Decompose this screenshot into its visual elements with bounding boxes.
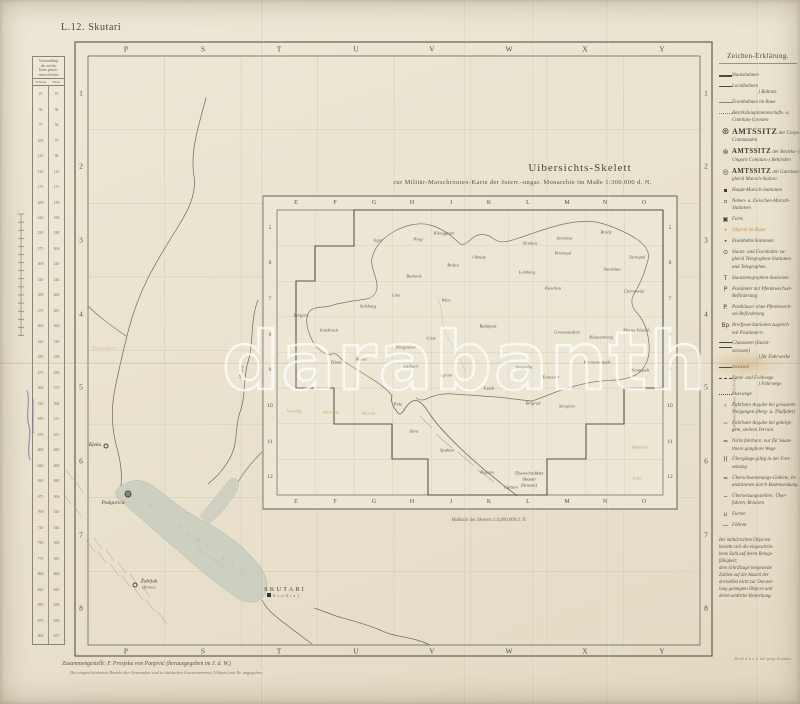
inset-city-label: Laibach (403, 364, 418, 369)
inset-row-number-left: 5 (269, 225, 272, 231)
inset-city-label: Agram (440, 373, 453, 378)
grid-col-letter-bottom: S (201, 647, 205, 656)
inset-foreign-city-label: Venedig (287, 409, 302, 414)
inset-city-label: Serajevo (559, 404, 575, 409)
inset-row-number-left: 6 (269, 260, 272, 266)
inset-row-number-left: 9 (269, 367, 272, 373)
inset-city-label: Wien (441, 298, 450, 303)
inset-current-sheet-label: Skutari (522, 477, 535, 482)
grid-row-number-left: 4 (79, 310, 83, 319)
inset-foreign-city-label: Sofia (632, 476, 641, 481)
inset-foreign-city-label: Ancona (361, 411, 375, 416)
inset-city-label: Königgrätz (434, 231, 455, 236)
grid-col-letter-top: Y (659, 45, 664, 54)
grid-col-letter-bottom: U (353, 647, 358, 656)
inset-city-label: Czernowitz (624, 289, 645, 294)
grid-col-letter-top: V (429, 45, 434, 54)
inset-row-number-right: 7 (669, 296, 672, 302)
grid-row-number-left: 1 (79, 89, 83, 98)
grid-row-number-right: 3 (704, 236, 708, 245)
grid-col-letter-bottom: V (429, 647, 434, 656)
inset-row-number-right: 6 (669, 260, 672, 266)
inset-city-label: Klausenburg (589, 335, 613, 340)
grid-row-number-left: 7 (79, 531, 83, 540)
inset-city-label: Stanislau (603, 267, 620, 272)
inset-row-number-left: 11 (267, 439, 272, 445)
place-marker-dot (104, 444, 109, 449)
grid-col-letter-bottom: X (582, 647, 587, 656)
grid-col-letter-bottom: T (277, 647, 282, 656)
grid-col-letter-top: S (201, 45, 205, 54)
inset-city-label: Lemberg (519, 270, 535, 275)
inset-col-letter-bottom: K (487, 499, 491, 505)
inset-current-sheet-label: (Scutari) (521, 483, 537, 488)
inset-row-number-right: 5 (669, 225, 672, 231)
inset-col-letter-top: N (603, 200, 607, 206)
inset-city-label: Maros-Vásárh. (623, 328, 651, 333)
inset-city-label: Eger (374, 238, 383, 243)
grid-col-letter-bottom: P (124, 647, 128, 656)
inset-col-letter-bottom: H (410, 499, 414, 505)
inset-row-number-right: 12 (667, 474, 673, 480)
grid-col-letter-top: P (124, 45, 128, 54)
grid-row-number-right: 5 (704, 383, 708, 392)
place-marker-town (125, 491, 132, 498)
inset-city-label: Ragusa (480, 470, 494, 475)
grid-row-number-right: 7 (704, 531, 708, 540)
place-label: Rjeka (89, 442, 102, 448)
inset-city-label: Spalato (440, 448, 454, 453)
inset-foreign-city-label: Bukarest (632, 445, 648, 450)
inset-city-label: Bregenz (294, 313, 309, 318)
inset-col-letter-bottom: E (294, 499, 298, 505)
inset-city-label: Linz (392, 293, 400, 298)
grid-col-letter-bottom: W (505, 647, 512, 656)
place-label: Žabljak(Ruine) (141, 579, 158, 590)
inset-city-label: Zara (410, 429, 419, 434)
inset-col-letter-top: E (294, 200, 298, 206)
inset-row-number-left: 7 (269, 296, 272, 302)
inset-city-label: Belgrad (526, 401, 541, 406)
place-label: Podgorica (101, 500, 124, 506)
inset-city-label: Jaroslau (556, 236, 572, 241)
grid-row-number-left: 8 (79, 604, 83, 613)
inset-city-label: Essek (484, 386, 494, 391)
inset-city-label: Tarnopol (629, 255, 646, 260)
map-sheet-scan: L.12. Skutari Uibersichts-Skelett zur Mi… (0, 0, 800, 704)
grid-row-number-left: 5 (79, 383, 83, 392)
inset-col-letter-top: F (333, 200, 336, 206)
inset-current-sheet-label: Übersichtsblatt (515, 471, 543, 476)
inset-row-number-right: 8 (669, 332, 672, 338)
inset-city-label: Brody (600, 230, 611, 235)
inset-col-letter-top: M (564, 200, 569, 206)
inset-city-label: Cattaro (504, 485, 518, 490)
inset-col-letter-bottom: N (603, 499, 607, 505)
inset-row-number-right: 10 (667, 403, 673, 409)
grid-row-number-left: 6 (79, 457, 83, 466)
inset-city-label: Klagenfurt (396, 345, 416, 350)
inset-col-letter-bottom: F (333, 499, 336, 505)
inset-col-letter-top: J (450, 200, 452, 206)
inset-city-label: Budapest (479, 324, 496, 329)
inset-city-label: Graz (426, 336, 435, 341)
grid-col-letter-top: W (505, 45, 512, 54)
grid-row-number-right: 6 (704, 457, 708, 466)
inset-col-letter-bottom: L (526, 499, 530, 505)
inset-col-letter-top: O (642, 200, 646, 206)
inset-city-label: Olmütz (472, 255, 485, 260)
inset-city-label: Innsbruck (320, 328, 338, 333)
inset-city-label: Budweis (406, 274, 422, 279)
inset-city-label: Salzburg (360, 304, 376, 309)
inset-city-label: Trient (331, 360, 342, 365)
inset-row-number-left: 12 (267, 474, 273, 480)
inset-col-letter-bottom: G (372, 499, 376, 505)
grid-col-letter-top: X (582, 45, 587, 54)
grid-col-letter-bottom: Y (659, 647, 664, 656)
inset-col-letter-bottom: O (642, 499, 646, 505)
inset-city-label: Przemysl (555, 251, 572, 256)
inset-city-label: Brünn (447, 263, 458, 268)
grid-row-number-left: 3 (79, 236, 83, 245)
grid-col-letter-top: U (353, 45, 358, 54)
place-sublabel: (Ruine) (141, 585, 158, 590)
inset-city-label: Hermannstadt (584, 360, 610, 365)
inset-city-label: Kronstadt (631, 368, 649, 373)
inset-row-number-left: 8 (269, 332, 272, 338)
inset-city-label: Kaschau (545, 286, 561, 291)
grid-col-letter-top: T (277, 45, 282, 54)
grid-row-number-right: 8 (704, 604, 708, 613)
grid-row-number-right: 1 (704, 89, 708, 98)
grid-row-number-right: 4 (704, 310, 708, 319)
inset-city-label: Temesvár (542, 375, 559, 380)
inset-col-letter-top: H (410, 200, 414, 206)
grid-row-number-right: 2 (704, 162, 708, 171)
inset-city-label: Bozen (355, 357, 366, 362)
inset-col-letter-top: G (372, 200, 376, 206)
label-layer: PSTUVWXYPSTUVWXY1234567812345678EEFFGGHH… (0, 0, 800, 704)
inset-row-number-right: 9 (669, 367, 672, 373)
inset-col-letter-bottom: M (564, 499, 569, 505)
inset-col-letter-top: L (526, 200, 530, 206)
inset-foreign-city-label: Ravenna (323, 410, 339, 415)
inset-city-label: Szegedin (516, 365, 532, 370)
inset-row-number-right: 11 (667, 439, 672, 445)
grid-row-number-left: 2 (79, 162, 83, 171)
place-marker-square (267, 593, 271, 597)
inset-city-label: Krakau (523, 241, 537, 246)
inset-city-label: Prag (413, 237, 422, 242)
inset-col-letter-top: K (487, 200, 491, 206)
inset-row-number-left: 10 (267, 403, 273, 409)
place-marker-dot (133, 583, 138, 588)
inset-col-letter-bottom: J (450, 499, 452, 505)
inset-city-label: Grosswardein (554, 330, 580, 335)
inset-city-label: Pola (394, 402, 403, 407)
